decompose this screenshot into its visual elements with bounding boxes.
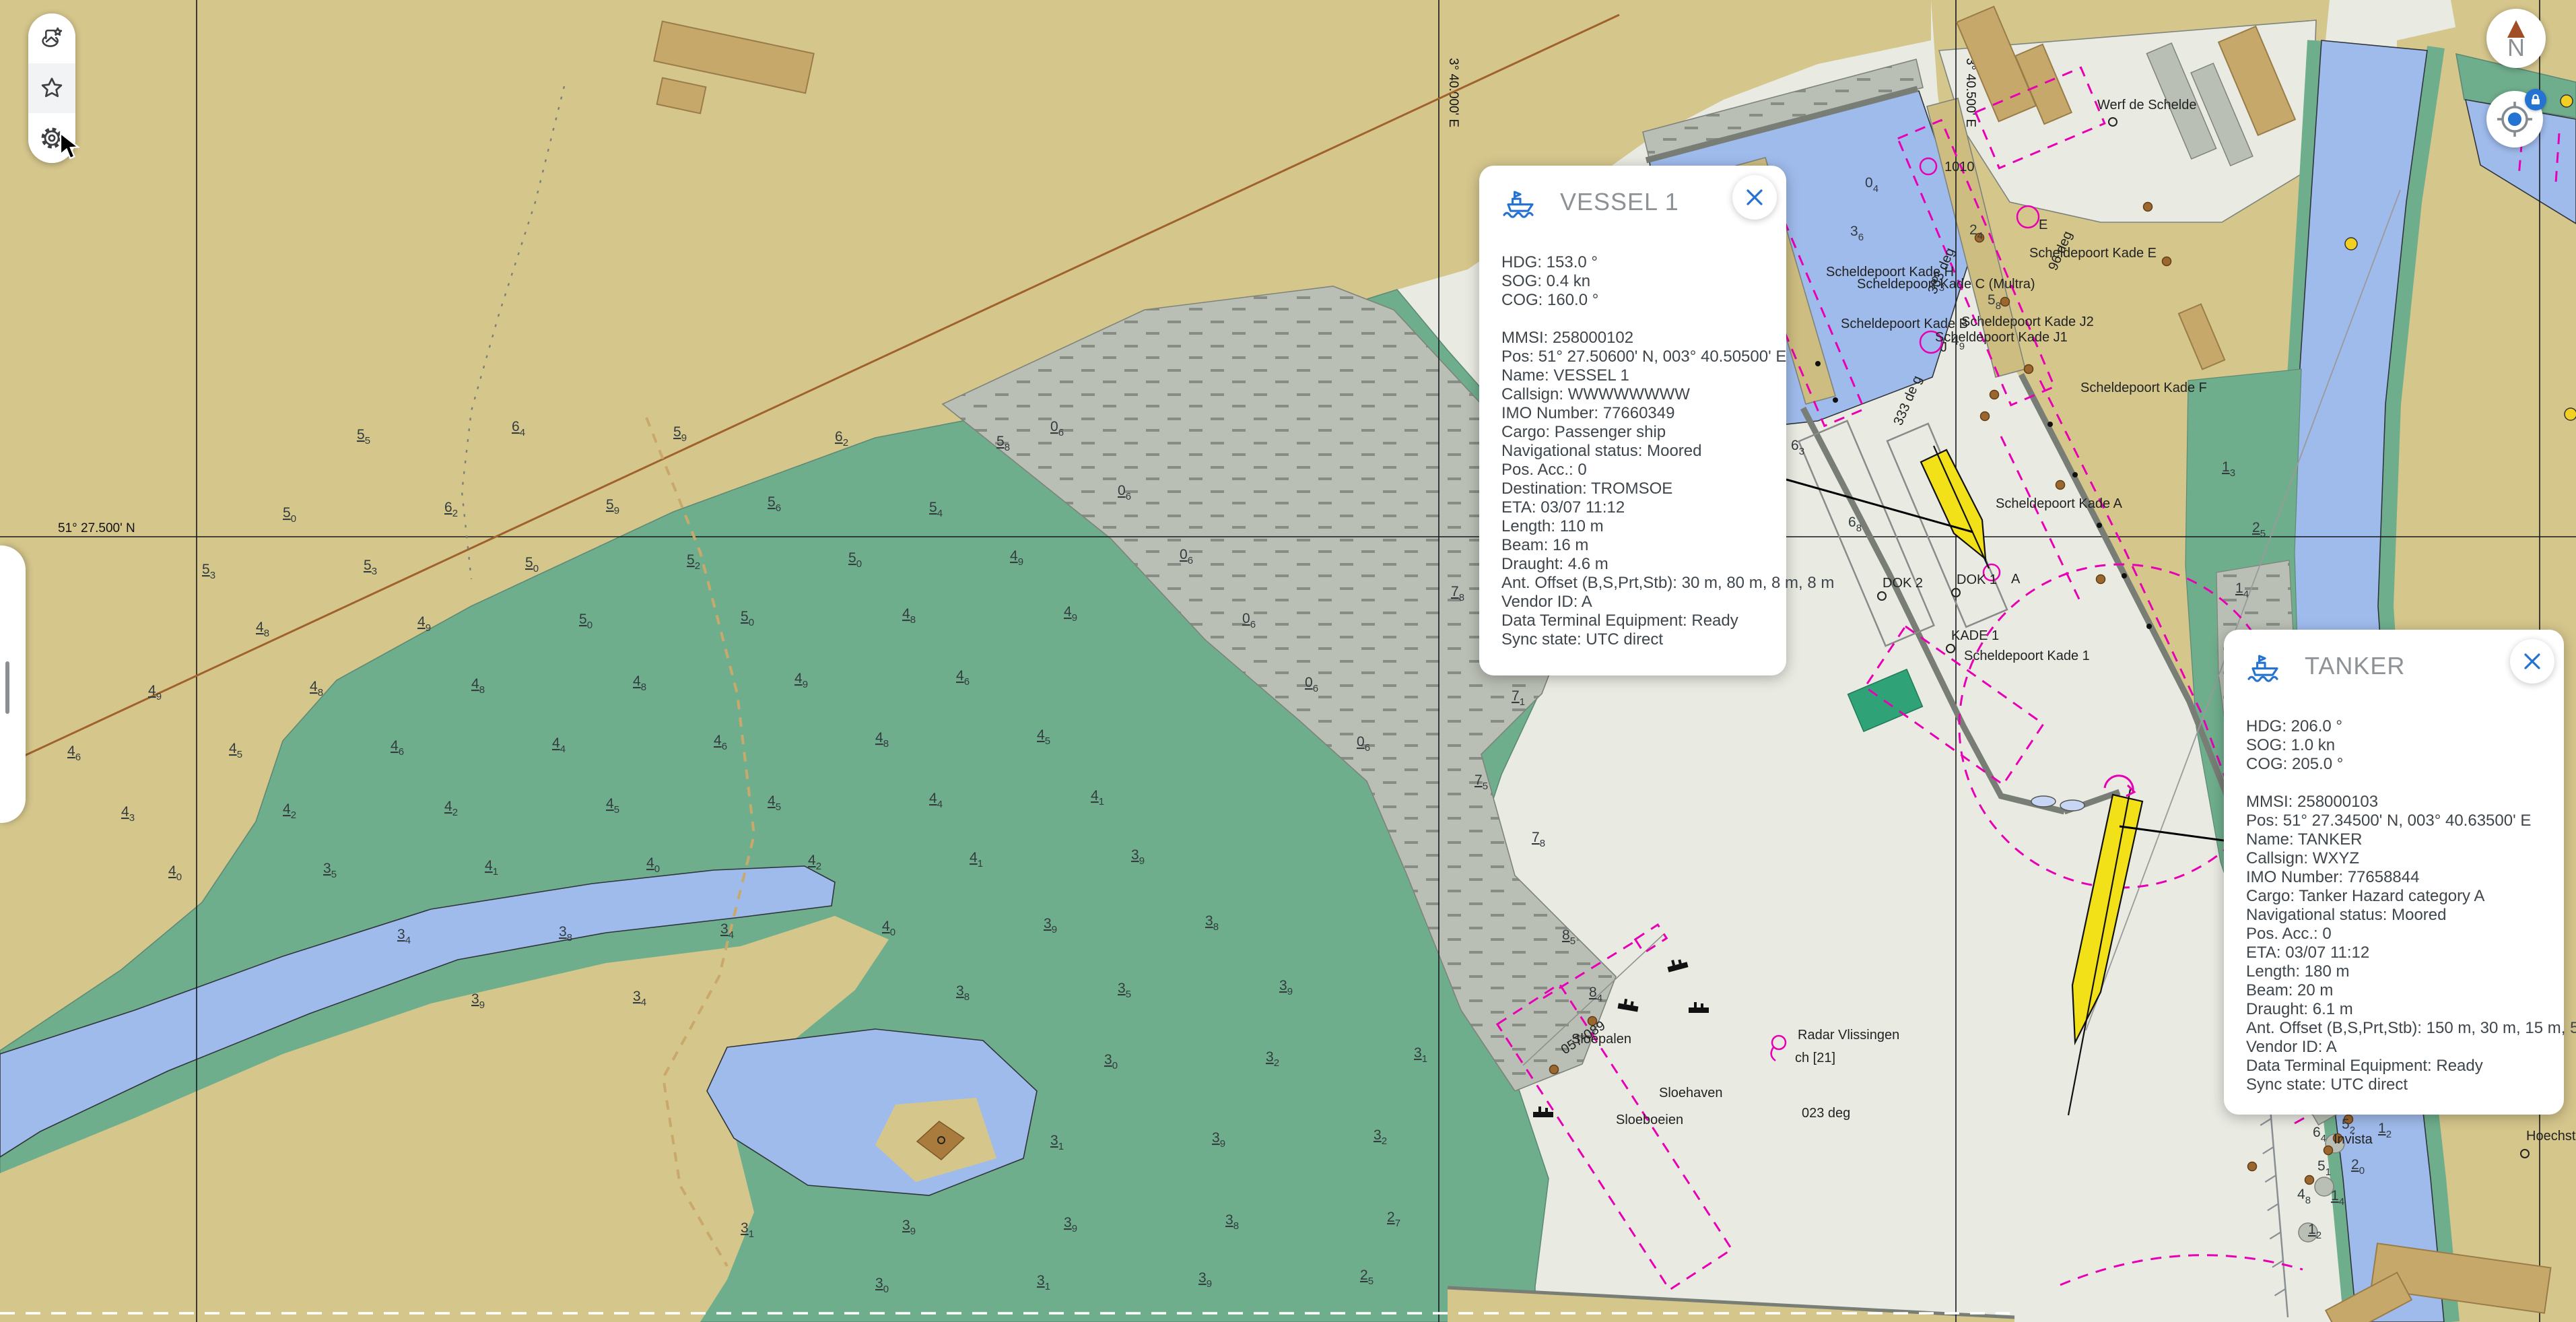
map-label: Scheldepoort Kade J2	[1961, 315, 2094, 329]
gear-icon	[39, 125, 65, 151]
restricted-area	[1635, 925, 1667, 953]
map-label: Hoechst	[2526, 1129, 2576, 1144]
chart-pontoon	[2060, 800, 2084, 811]
popup-line: SOG: 1.0 kn	[2246, 736, 2576, 755]
map-label: Radar Vlissingen	[1798, 1028, 1899, 1043]
drawer-handle-icon	[5, 661, 9, 714]
map-toolbar	[28, 13, 75, 163]
popup-line: Name: VESSEL 1	[1501, 366, 1834, 385]
mooring-pile	[1550, 1065, 1559, 1074]
popup-line: Length: 110 m	[1501, 517, 1834, 536]
lock-icon	[2530, 94, 2541, 106]
grid-parallel-label: 51° 27.500' N	[58, 521, 135, 535]
popup-line: Data Terminal Equipment: Ready	[2246, 1057, 2576, 1076]
popup-line: Pos: 51° 27.34500' N, 003° 40.63500' E	[2246, 812, 2576, 830]
close-button[interactable]	[1732, 175, 1777, 220]
popup-line: Navigational status: Moored	[2246, 906, 2576, 925]
depth-sounding: 78	[1532, 830, 1545, 849]
settings-button[interactable]	[28, 113, 75, 163]
map-label: Invista	[2334, 1132, 2373, 1147]
mooring-pile	[2324, 1146, 2333, 1155]
popup-line: Pos. Acc.: 0	[1501, 461, 1834, 480]
popup-line: Callsign: WWWWWWWW	[1501, 385, 1834, 404]
popup-line: HDG: 206.0 °	[2246, 717, 2576, 736]
popup-line: SOG: 0.4 kn	[1501, 272, 1834, 291]
locate-lock-badge	[2525, 89, 2546, 110]
map-label: ch [21]	[1795, 1051, 1835, 1065]
depth-sounding: 48	[2297, 1187, 2311, 1206]
popup-line: COG: 160.0 °	[1501, 291, 1834, 310]
popup-line: Draught: 4.6 m	[1501, 555, 1834, 574]
popup-line: ETA: 03/07 11:12	[2246, 944, 2576, 962]
mooring-pile	[2144, 203, 2153, 211]
popup-line: ETA: 03/07 11:12	[1501, 498, 1834, 517]
wreck-icon	[1618, 998, 1639, 1012]
map-label: Sloeboeien	[1616, 1113, 1683, 1127]
popup-line: Callsign: WXYZ	[2246, 849, 2576, 868]
popup-line: Sync state: UTC direct	[1501, 630, 1834, 649]
side-drawer-tab[interactable]	[0, 546, 26, 823]
buoy-yellow	[2345, 238, 2357, 250]
popup-gap	[2246, 774, 2576, 793]
wreck-icon	[1666, 957, 1688, 972]
mooring-pile	[2025, 365, 2033, 374]
popup-line: HDG: 153.0 °	[1501, 253, 1834, 272]
map-stage: 3° 40.000' E3° 40.500' E51° 27.500' N556…	[0, 0, 2576, 1322]
chart-pontoon	[2031, 796, 2056, 807]
popup-line: IMO Number: 77660349	[1501, 404, 1834, 423]
close-icon	[2522, 651, 2542, 671]
bollard-dot	[2146, 624, 2152, 629]
mooring-pile	[2001, 298, 2010, 306]
ais-vessel-shape[interactable]	[2068, 776, 2142, 1115]
map-label: Scheldepoort Kade F	[2080, 381, 2207, 395]
map-label: Scheldepoort Kade J1	[1935, 330, 2068, 345]
popup-line: Length: 180 m	[2246, 962, 2576, 981]
popup-line: Name: TANKER	[2246, 830, 2576, 849]
popup-line: Cargo: Tanker Hazard category A	[2246, 887, 2576, 906]
popup-line: Pos. Acc.: 0	[2246, 925, 2576, 944]
popup-body: HDG: 206.0 °SOG: 1.0 knCOG: 205.0 °MMSI:…	[2246, 717, 2576, 1094]
mooring-pile	[2097, 575, 2105, 584]
vessel-info-popup-vessel1: VESSEL 1 HDG: 153.0 °SOG: 0.4 knCOG: 160…	[1479, 166, 1786, 675]
vessel-heading-line	[2068, 789, 2130, 1115]
popup-line: Destination: TROMSOE	[1501, 480, 1834, 498]
close-icon	[1744, 187, 1765, 207]
popup-header: VESSEL 1	[1501, 186, 1719, 218]
popup-line: Sync state: UTC direct	[2246, 1076, 2576, 1094]
mooring-pile	[1990, 391, 1999, 399]
map-label: J	[1940, 340, 1947, 355]
leading-line-feather	[2265, 1175, 2276, 1182]
chart-star-icon	[39, 26, 65, 51]
popup-line: Cargo: Passenger ship	[1501, 423, 1834, 442]
bollard-dot	[2072, 472, 2078, 477]
buoy-yellow	[2561, 95, 2573, 107]
rate-of-turn-arrow	[2105, 776, 2133, 792]
popup-line: Vendor ID: A	[1501, 593, 1834, 612]
radar-station-icon	[1771, 1047, 1775, 1061]
popup-line: Data Terminal Equipment: Ready	[1501, 612, 1834, 630]
popup-line: Ant. Offset (B,S,Prt,Stb): 30 m, 80 m, 8…	[1501, 574, 1834, 593]
mooring-pile	[2248, 1162, 2257, 1171]
popup-title: TANKER	[2305, 652, 2405, 680]
mooring-pile	[2305, 1176, 2314, 1185]
wreck-icon	[1689, 1002, 1709, 1013]
map-label: E	[2039, 218, 2047, 232]
landmark-ring	[1878, 592, 1886, 600]
locate-button[interactable]	[2486, 91, 2543, 147]
vessel-info-popup-tanker: TANKER HDG: 206.0 °SOG: 1.0 knCOG: 205.0…	[2224, 630, 2564, 1115]
mooring-pile	[2163, 257, 2171, 266]
star-icon	[39, 75, 65, 101]
close-button[interactable]	[2510, 639, 2554, 684]
map-label: A	[2011, 572, 2021, 587]
bollard-dot	[2047, 422, 2053, 427]
wreck-icon	[1533, 1106, 1553, 1117]
ship-icon	[1501, 186, 1540, 218]
map-label: Scheldepoort Kade 1	[1964, 649, 2090, 663]
radar-station-icon	[1772, 1036, 1786, 1049]
popup-line: Ant. Offset (B,S,Prt,Stb): 150 m, 30 m, …	[2246, 1019, 2576, 1038]
leading-line-feather	[2274, 1289, 2285, 1296]
popup-line: Beam: 16 m	[1501, 536, 1834, 555]
map-label: Scheldepoort Kade E	[2029, 246, 2157, 261]
popup-body: HDG: 153.0 °SOG: 0.4 knCOG: 160.0 °MMSI:…	[1501, 253, 1834, 649]
popup-line: Pos: 51° 27.50600' N, 003° 40.50500' E	[1501, 348, 1834, 366]
ship-icon	[2245, 650, 2284, 682]
bollard-dot	[2097, 523, 2102, 528]
landmark-ring	[1946, 645, 1955, 653]
buoy-yellow	[2565, 408, 2576, 420]
popup-line: Beam: 20 m	[2246, 981, 2576, 1000]
map-label: DOK 2	[1883, 576, 1923, 591]
popup-line: MMSI: 258000103	[2246, 793, 2576, 812]
popup-line: Vendor ID: A	[2246, 1038, 2576, 1057]
bollard-dot	[2122, 573, 2127, 579]
popup-gap	[1501, 310, 1834, 329]
popup-line: Draught: 6.1 m	[2246, 1000, 2576, 1019]
map-label: DOK 1	[1957, 572, 1997, 587]
map-label: Werf de Schelde	[2097, 98, 2197, 112]
map-label: 023 deg	[1802, 1106, 1850, 1121]
map-label: KADE 1	[1951, 628, 1999, 643]
grid-meridian-label: 3° 40.500' E	[1963, 58, 1977, 127]
ais-vessel-shape[interactable]	[1921, 446, 1989, 568]
leading-line-feather	[2270, 1232, 2280, 1239]
leading-line-feather	[2260, 1119, 2271, 1125]
map-label: Scheldepoort Kade A	[1996, 496, 2123, 511]
popup-title: VESSEL 1	[1560, 188, 1679, 216]
compass-north-button[interactable]: N	[2486, 9, 2546, 68]
popup-line: MMSI: 258000102	[1501, 329, 1834, 348]
restricted-arc	[2060, 1255, 2303, 1285]
chart-new-button[interactable]	[28, 13, 75, 63]
popup-line: COG: 205.0 °	[2246, 755, 2576, 774]
mooring-pile	[2056, 481, 2065, 490]
leading-line-feather	[2268, 1203, 2278, 1210]
favorites-button[interactable]	[28, 63, 75, 113]
nautical-chart[interactable]: 3° 40.000' E3° 40.500' E51° 27.500' N556…	[0, 0, 2576, 1322]
map-label: Sloehaven	[1659, 1086, 1723, 1100]
mooring-pile	[1981, 412, 1990, 421]
popup-line: Navigational status: Moored	[1501, 442, 1834, 461]
depth-sounding: 64	[2313, 1125, 2326, 1144]
map-label: Scheldepoort Kade B	[1841, 317, 1968, 331]
map-label: 1010	[1944, 160, 1975, 174]
leading-line-feather	[2263, 1147, 2274, 1154]
compass-n-label: N	[2507, 38, 2525, 58]
popup-header: TANKER	[2245, 650, 2497, 682]
popup-line: IMO Number: 77658844	[2246, 868, 2576, 887]
